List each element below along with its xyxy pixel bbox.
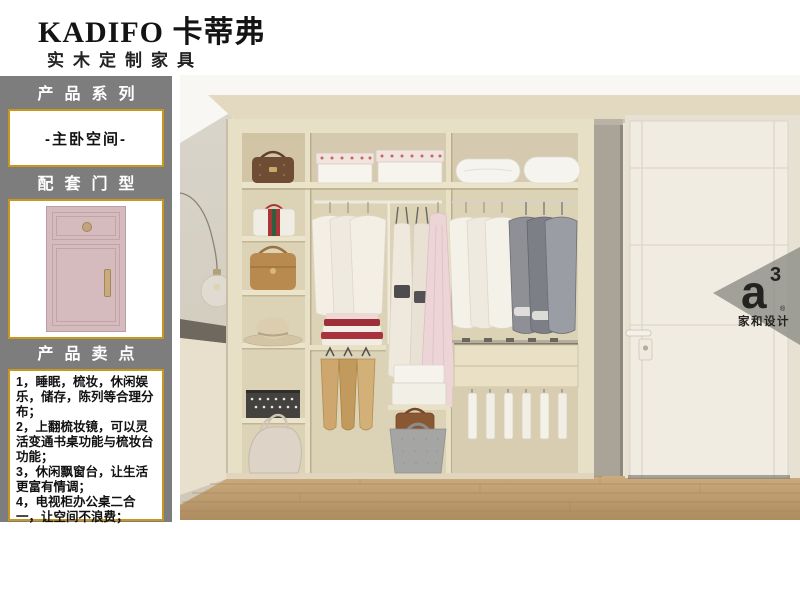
floral-gift-boxes xyxy=(316,150,444,183)
drawer-knob-icon xyxy=(82,222,92,232)
sidebar: 产品系列 -主卧空间- 配套门型 产品卖点 1，睡眠，梳妆，休闲娱乐，储存，陈列… xyxy=(0,76,172,522)
sidebar-title-series: 产品系列 xyxy=(0,85,172,105)
hanging-white-shirts-right xyxy=(449,202,519,329)
felt-basket xyxy=(390,424,446,473)
brand-logo: KADIFO 卡蒂弗 xyxy=(38,7,266,51)
selling-point: 4，电视柜办公桌二合一，让空间不浪费； xyxy=(16,495,156,525)
striped-white-bag xyxy=(253,205,295,236)
mid-shelf-shadow xyxy=(310,350,386,352)
folded-clothes-stack xyxy=(321,313,383,345)
pink-door-panel xyxy=(52,244,120,326)
series-value: -主卧空间- xyxy=(45,128,127,149)
hanging-scarves xyxy=(316,348,382,430)
selling-point: 3，休闲飘窗台，让生活更富有情调； xyxy=(16,465,156,495)
badge-name: 家和设计 xyxy=(738,314,790,328)
white-storage-boxes xyxy=(392,365,446,405)
points-box: 1，睡眠，梳妆，休闲娱乐，储存，陈列等合理分布； 2，上翻梳妆镜，可以灵活变通书… xyxy=(8,369,164,521)
product-sheet: KADIFO 卡蒂弗 实木定制家具 产品系列 -主卧空间- 配套门型 产品卖点 … xyxy=(0,0,800,600)
tan-handbag xyxy=(250,247,296,290)
brand-tagline: 实木定制家具 xyxy=(47,46,203,71)
pink-door-thumbnail xyxy=(46,206,126,332)
showroom-photo: a 3 ® 家和设计 xyxy=(180,75,800,520)
hanging-white-shirts xyxy=(312,202,386,316)
patterned-storage-box xyxy=(246,390,300,418)
selling-point: 1，睡眠，梳妆，休闲娱乐，储存，陈列等合理分布； xyxy=(16,375,156,420)
wood-floor xyxy=(180,473,800,520)
sidebar-title-points: 产品卖点 xyxy=(0,345,172,365)
sidebar-title-door: 配套门型 xyxy=(0,175,172,195)
series-box: -主卧空间- xyxy=(8,109,164,167)
selling-point: 2，上翻梳妆镜，可以灵活变通书桌功能与梳妆台功能； xyxy=(16,420,156,465)
door-box xyxy=(8,199,164,339)
badge-logo-a: a xyxy=(741,266,767,318)
badge-registered-mark: ® xyxy=(780,305,786,313)
pink-door-drawer xyxy=(52,212,120,240)
badge-logo-sup: 3 xyxy=(770,264,781,286)
gray-wall-strip xyxy=(592,119,623,476)
hanging-gray-jackets xyxy=(509,202,577,334)
door-handle-icon xyxy=(104,269,111,297)
drawer-unit xyxy=(452,338,578,387)
